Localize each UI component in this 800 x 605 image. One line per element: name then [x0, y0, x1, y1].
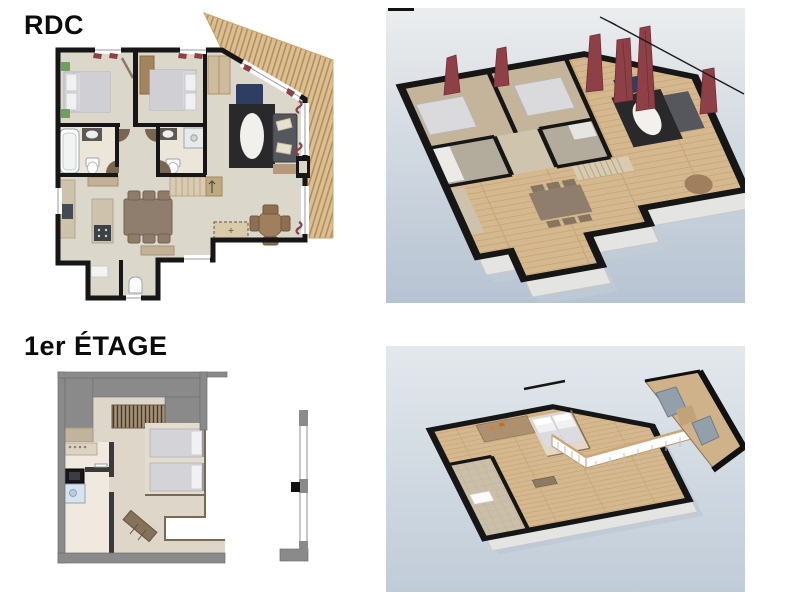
railing-post — [299, 410, 308, 426]
pillow — [191, 465, 202, 489]
oval-coffee-table — [240, 113, 264, 159]
kitchen-sink — [62, 204, 73, 219]
railing-bracket — [291, 482, 300, 492]
armchair — [236, 84, 263, 105]
partition-wall — [109, 492, 114, 553]
side-table — [273, 164, 297, 174]
single-bed — [150, 463, 207, 491]
partition-wall — [85, 467, 112, 472]
ground-floor-3d-view — [386, 8, 745, 303]
doormat — [91, 266, 108, 277]
sideboard — [88, 177, 118, 186]
round-table — [257, 211, 283, 237]
railing-post — [299, 541, 308, 553]
partition-wall — [109, 442, 114, 477]
sideboard — [141, 246, 174, 255]
first-floor-2d-plan — [50, 365, 320, 570]
pillow — [185, 74, 196, 91]
shelf — [65, 428, 93, 442]
door-leaf — [95, 464, 107, 467]
cushion — [276, 143, 291, 154]
wc-toilet — [129, 277, 142, 293]
pillow — [66, 93, 77, 110]
single-bed — [150, 429, 207, 457]
dining-table — [124, 199, 172, 235]
vanity — [65, 443, 97, 455]
railing-post — [299, 479, 308, 493]
ground-floor-2d-plan — [45, 8, 345, 308]
upstairs-bathroom — [62, 442, 114, 553]
floor-plan-sheet: RDC 1er ÉTAGE — [0, 0, 800, 605]
pillow — [191, 431, 202, 455]
first-floor-3d-view — [386, 346, 745, 592]
stair-landing — [206, 177, 222, 196]
sink — [163, 130, 174, 138]
stove — [94, 225, 111, 241]
nightstand — [61, 109, 70, 118]
pillow — [185, 93, 196, 110]
sink — [86, 131, 98, 139]
nightstand — [61, 62, 70, 71]
pillow — [66, 74, 77, 91]
floor-label-first-floor: 1er ÉTAGE — [24, 331, 168, 362]
sleeping-area — [145, 423, 207, 495]
